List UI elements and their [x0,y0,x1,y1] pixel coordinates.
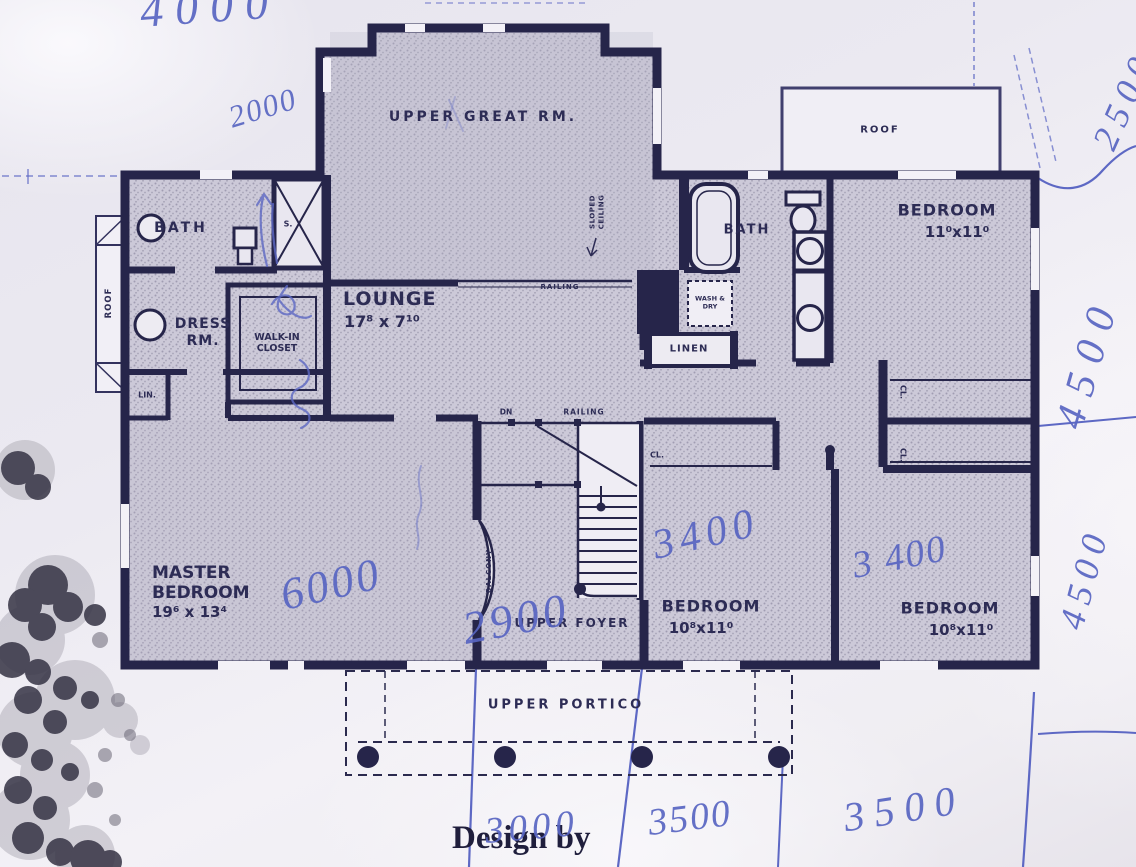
toilet-right-tank [786,192,820,205]
closet-label-hall: CL. [650,451,664,460]
railing-label-lounge: RAILING [540,283,579,291]
balcony-label: BALCONY [485,549,493,593]
column-icon [494,746,516,768]
room-label-upper-great-rm: UPPER GREAT RM. [389,109,577,125]
sink-icon [135,310,165,340]
roof-label-right: ROOF [860,125,900,136]
floorplan-drawing [0,0,1136,867]
room-label-master-bedroom: MASTER BEDROOM [152,563,287,603]
room-dims-bedroom-bottom-center: 10⁸x11⁰ [669,619,734,637]
column-icon [357,746,379,768]
room-label-walk-in-closet: WALK-IN CLOSET [245,332,309,354]
column-icon [631,746,653,768]
sloped-ceiling-note: SLOPED CEILING [589,187,606,237]
toilet-left-bowl [238,248,252,264]
room-label-bedroom-bottom-center: BEDROOM [662,597,761,616]
shower-label: S. [284,220,293,229]
room-label-bath-right: BATH [724,223,771,238]
floorplan-scan: UPPER GREAT RM. SLOPED CEILING BATH S. D… [0,0,1136,867]
room-label-dress-rm: DRESS RM. [163,316,243,350]
room-label-bedroom-top-right: BEDROOM [898,201,997,220]
room-dims-lounge: 17⁸ x 7¹⁰ [344,312,420,331]
stairs-dn-label: DN [500,408,513,417]
closet-label-right-2: CL. [899,448,908,462]
railing-label-stairs: RAILING [563,408,604,417]
room-dims-bedroom-bottom-right: 10⁸x11⁰ [929,621,994,639]
room-dims-master-bedroom: 19⁶ x 13⁴ [152,603,227,621]
wash-dry-label: WASH & DRY [695,296,725,311]
room-dims-bedroom-top-right: 11⁰x11⁰ [925,223,990,241]
room-label-lounge: LOUNGE [343,288,437,310]
closet-label-right-1: CL. [899,385,908,399]
roof-label-left: ROOF [104,288,114,319]
room-label-bedroom-bottom-right: BEDROOM [901,599,1000,618]
closet-label-lin: LIN. [138,391,156,400]
master-shade [128,420,474,662]
handwritten-dim-bottom-left: 3000 [483,802,580,853]
wall-mass [637,270,679,334]
great-room-shade [330,32,653,280]
toilet-right-bowl [791,206,815,234]
linen-label: LINEN [670,344,709,355]
door-post [825,445,835,455]
room-label-upper-portico: UPPER PORTICO [488,698,644,713]
column-icon [768,746,790,768]
upper-portico-outline [346,671,792,775]
toilet-left-icon [234,228,256,248]
room-label-bath-left: BATH [154,220,208,236]
